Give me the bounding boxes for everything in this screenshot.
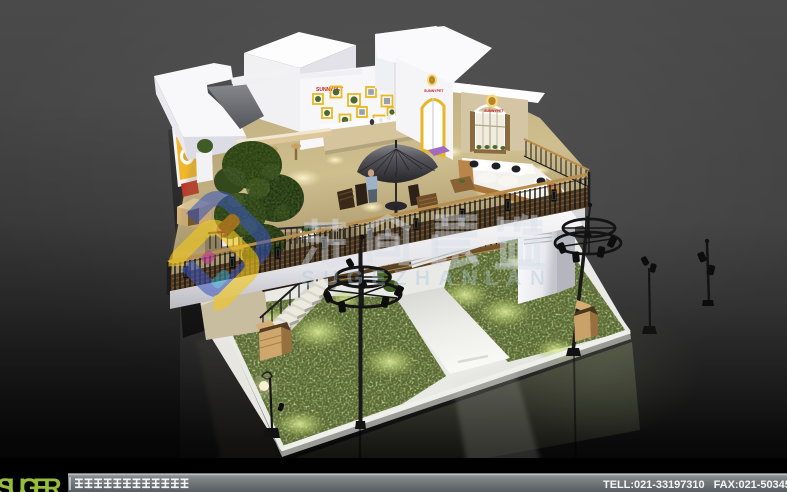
svg-text:SUNNYPET: SUNNYPET [484, 109, 504, 113]
svg-text:SUNNYPET: SUNNYPET [424, 89, 444, 93]
svg-text:SUGER: SUGER [0, 474, 61, 492]
svg-text:SUGEZHANLAN: SUGEZHANLAN [301, 267, 545, 290]
svg-text:TELL:021-33197310 FAX:021-50: TELL:021-33197310 FAX:021-5034505 [603, 479, 787, 491]
